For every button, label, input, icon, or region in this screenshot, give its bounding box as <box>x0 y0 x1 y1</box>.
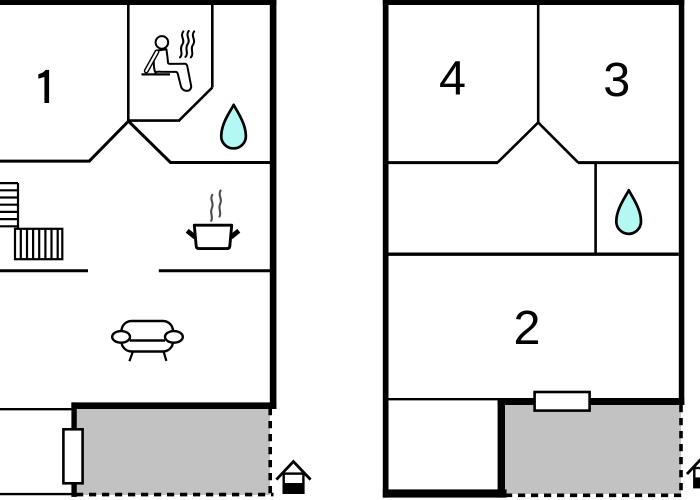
svg-text:2: 2 <box>514 301 541 355</box>
svg-text:4: 4 <box>439 52 466 106</box>
svg-text:3: 3 <box>603 53 630 107</box>
